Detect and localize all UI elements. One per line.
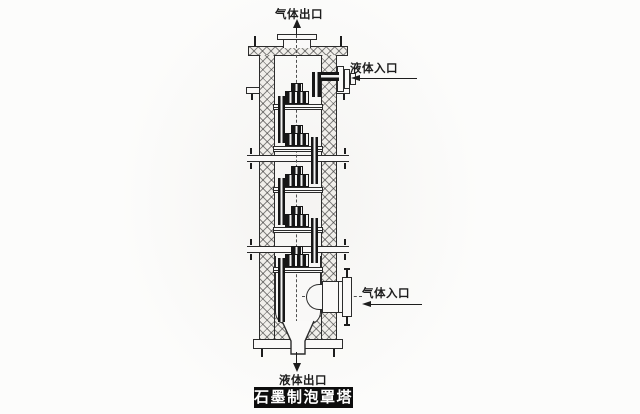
top-flange-bolt-left <box>254 36 256 46</box>
lug-bolt-right <box>343 94 345 100</box>
top-nozzle <box>283 39 311 48</box>
bubble-cap <box>285 214 309 227</box>
gas-inlet-arrow-shaft <box>370 304 422 305</box>
bubble-cap <box>285 254 309 267</box>
joint-bolt <box>250 239 252 245</box>
joint-bolt <box>250 148 252 154</box>
bubble-cap <box>285 133 309 146</box>
support-lug-left <box>246 87 260 94</box>
liquid-inlet-label: 液体入口 <box>350 60 398 76</box>
joint-bolt <box>344 163 346 169</box>
liquid-inlet-arrow-shaft <box>359 78 417 79</box>
bottom-outlet-funnel <box>280 319 316 359</box>
downcomer <box>278 96 285 143</box>
joint-bolt <box>344 254 346 260</box>
shell-wall-left <box>259 55 275 339</box>
gas-inlet-flange <box>342 277 352 317</box>
joint-bolt <box>344 239 346 245</box>
joint-bolt <box>250 163 252 169</box>
liquid-inlet-elbow <box>312 72 321 97</box>
gas-inlet-label: 气体入口 <box>362 285 410 301</box>
gas-inlet-bolt-bottom-head <box>344 324 350 326</box>
downcomer <box>278 258 285 322</box>
downcomer <box>278 178 285 225</box>
gas-inlet-bolt-top <box>346 269 348 278</box>
title-banner: 石墨制泡罩塔 <box>254 387 353 408</box>
lug-bolt-left <box>251 94 253 100</box>
downcomer <box>311 218 318 263</box>
bottom-flange-bolt-right <box>333 349 335 357</box>
gas-inlet-bolt-top-head <box>344 268 350 270</box>
bottom-flange-bolt-left <box>261 349 263 357</box>
top-flange-bolt-right <box>340 36 342 46</box>
up-arrow-icon <box>293 19 301 28</box>
up-arrow-shaft <box>296 26 297 35</box>
gas-inlet-nozzle <box>322 281 344 313</box>
joint-bolt <box>344 148 346 154</box>
downcomer <box>311 137 318 184</box>
bubble-cap <box>285 174 309 187</box>
section-joint-upper <box>247 155 349 162</box>
bubble-cap <box>285 91 309 104</box>
joint-bolt <box>250 254 252 260</box>
diagram-canvas: 气体出口 液体入口 <box>0 0 640 414</box>
down-arrow-icon <box>293 363 301 372</box>
liquid-outlet-label: 液体出口 <box>279 372 327 388</box>
